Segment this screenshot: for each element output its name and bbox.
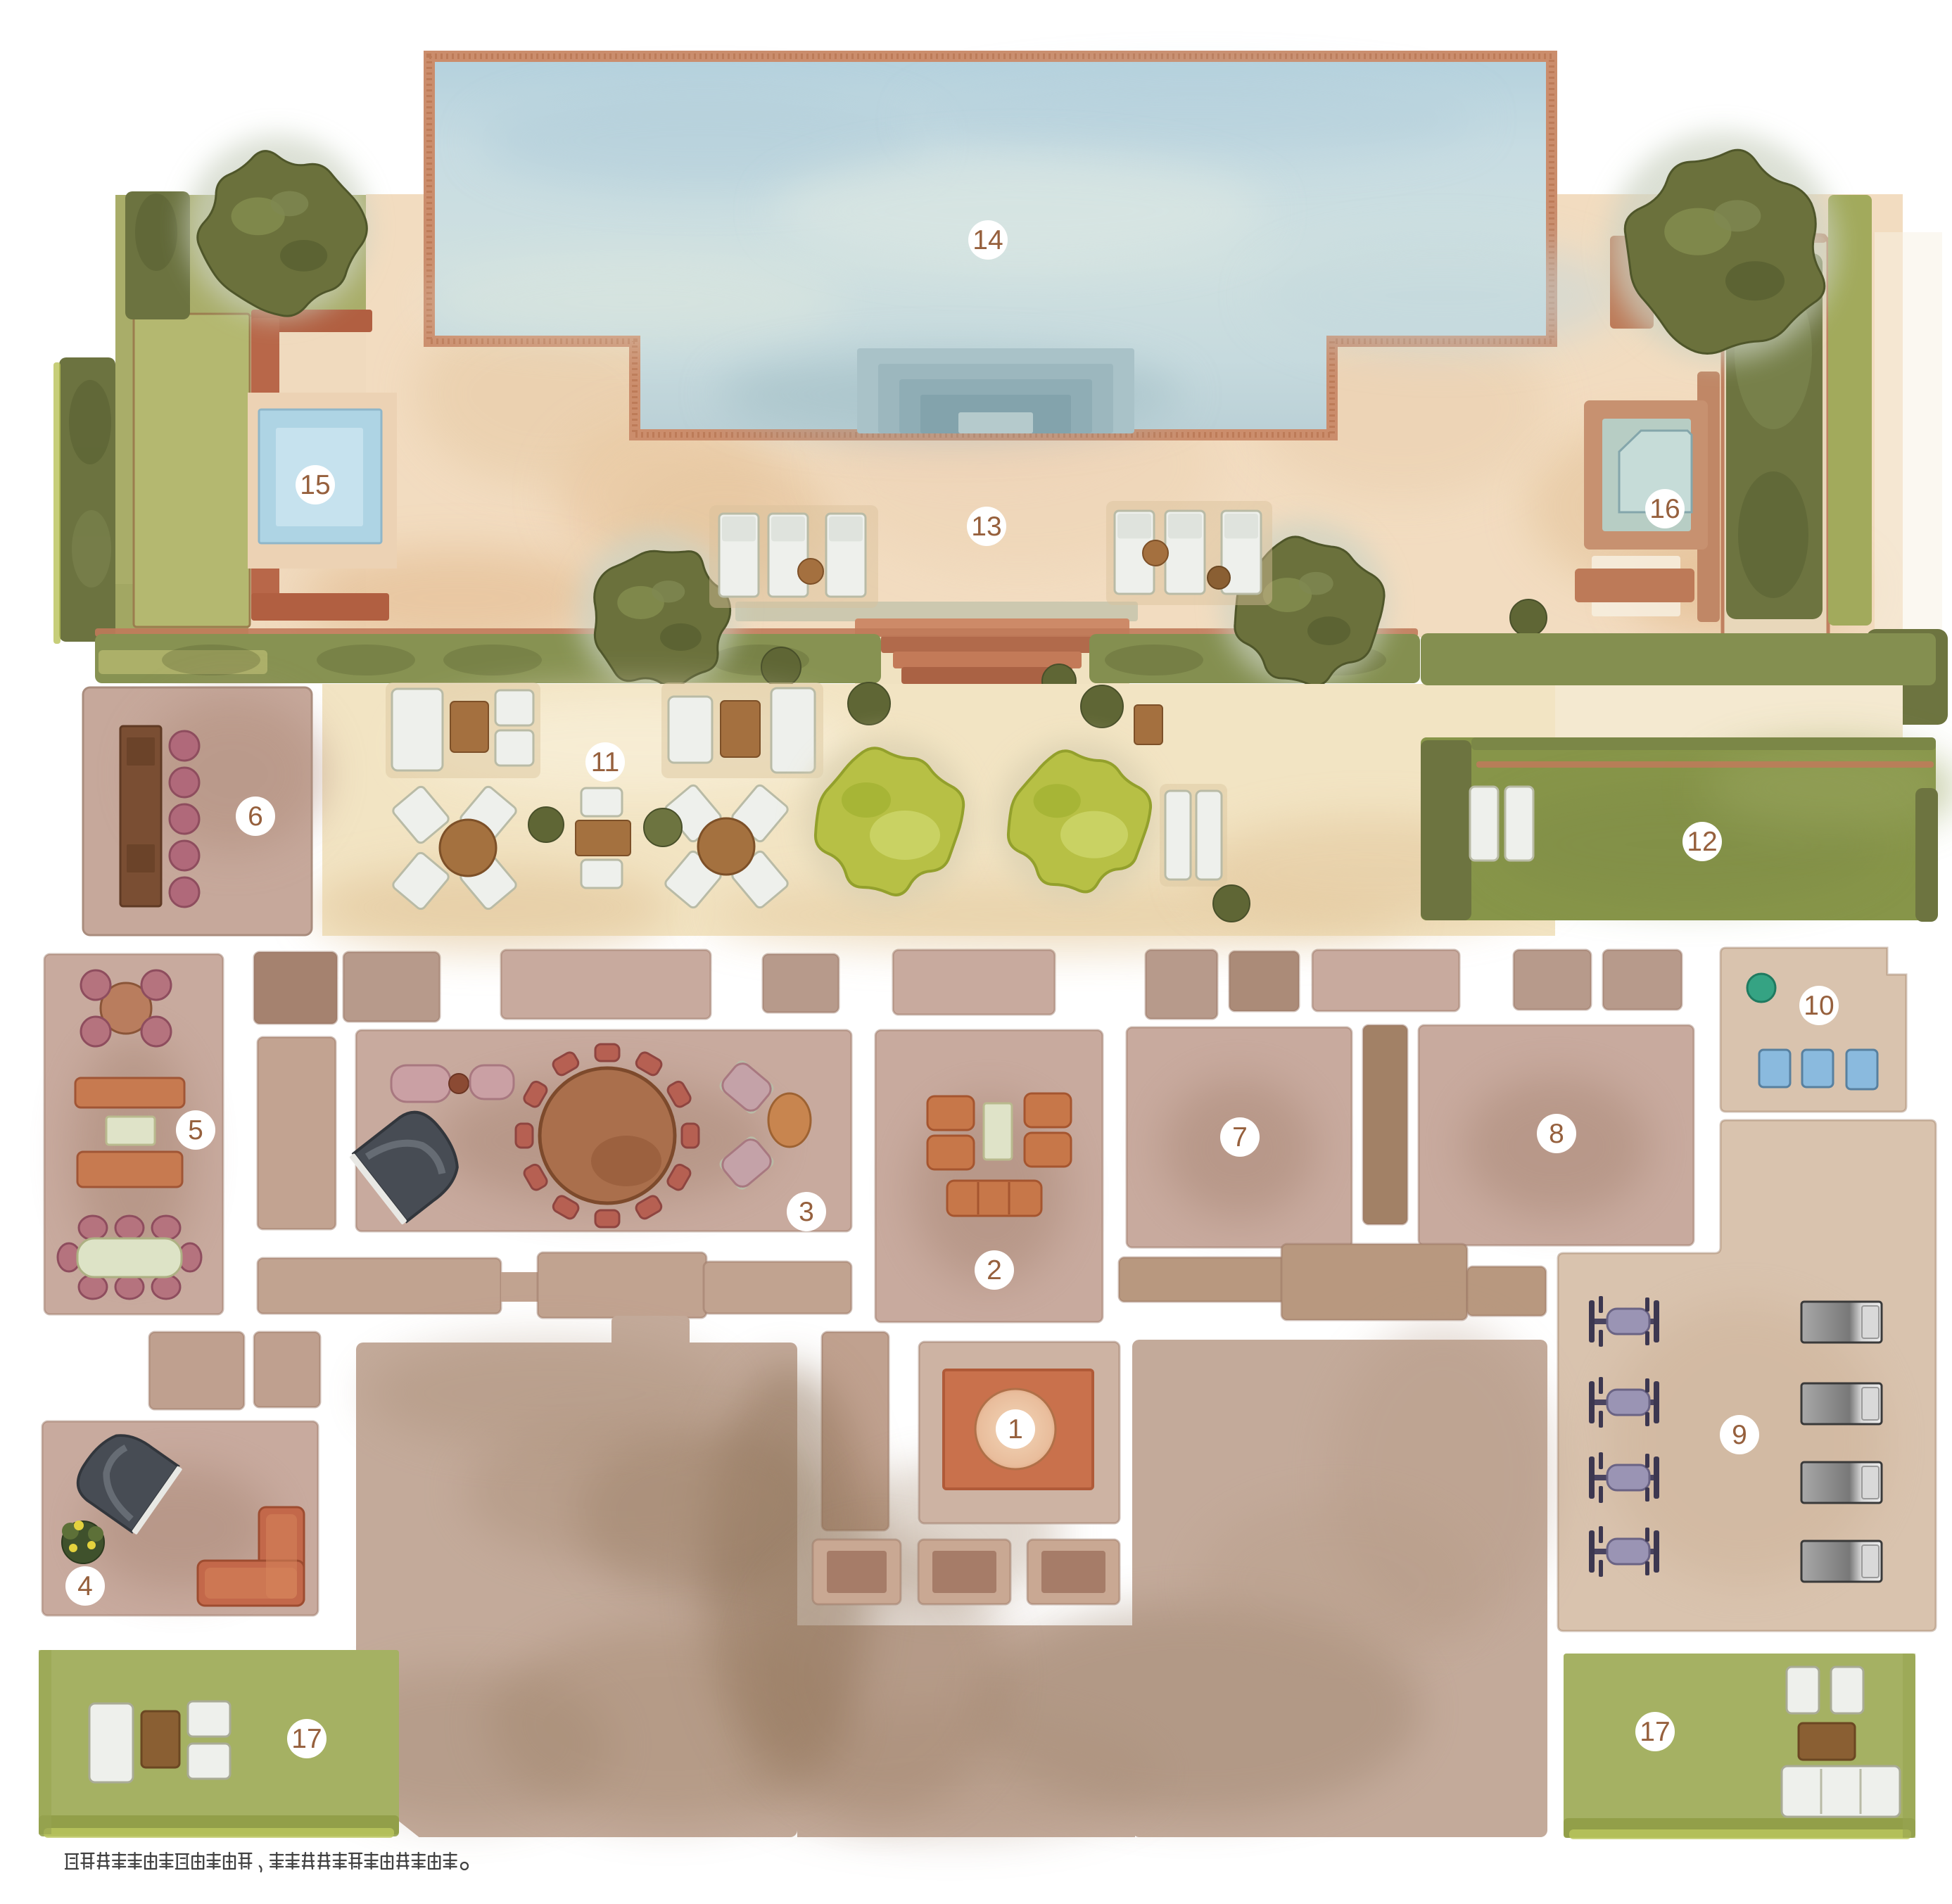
svg-text:9: 9 bbox=[1732, 1420, 1747, 1450]
svg-text:6: 6 bbox=[248, 801, 263, 832]
svg-text:4: 4 bbox=[77, 1571, 93, 1601]
svg-text:1: 1 bbox=[1008, 1414, 1023, 1445]
svg-text:7: 7 bbox=[1232, 1122, 1248, 1153]
svg-text:17: 17 bbox=[291, 1724, 322, 1754]
svg-text:5: 5 bbox=[188, 1115, 203, 1145]
svg-text:12: 12 bbox=[1687, 827, 1717, 857]
svg-text:15: 15 bbox=[300, 470, 330, 500]
svg-text:2: 2 bbox=[987, 1255, 1002, 1286]
svg-text:10: 10 bbox=[1804, 991, 1834, 1021]
svg-text:11: 11 bbox=[591, 747, 620, 778]
svg-text:16: 16 bbox=[1649, 494, 1680, 524]
svg-text:17: 17 bbox=[1640, 1717, 1670, 1747]
svg-text:3: 3 bbox=[799, 1197, 814, 1227]
svg-text:8: 8 bbox=[1549, 1119, 1564, 1149]
svg-text:13: 13 bbox=[971, 512, 1001, 542]
svg-text:14: 14 bbox=[972, 225, 1003, 255]
